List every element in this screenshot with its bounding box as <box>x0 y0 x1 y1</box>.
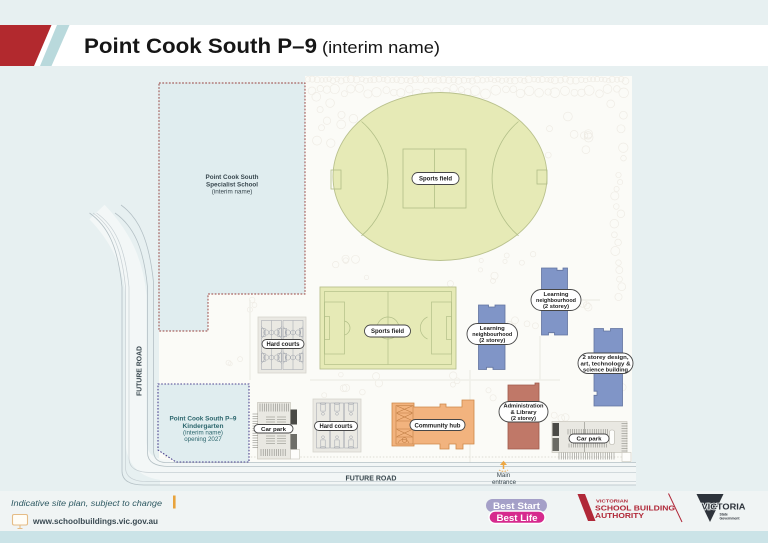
svg-text:neighbourhood: neighbourhood <box>472 332 512 338</box>
svg-text:FUTURE ROAD: FUTURE ROAD <box>346 474 398 483</box>
svg-text:Learning: Learning <box>480 326 505 332</box>
svg-text:Specialist School: Specialist School <box>206 182 258 189</box>
svg-text:AUTHORITY: AUTHORITY <box>595 511 644 520</box>
svg-text:& Library: & Library <box>511 410 538 416</box>
svg-text:Best Life: Best Life <box>497 513 538 523</box>
svg-text:Best Start: Best Start <box>493 501 540 511</box>
svg-text:(interim name): (interim name) <box>322 38 440 57</box>
svg-text:2 storey design,: 2 storey design, <box>583 355 629 361</box>
svg-text:Point Cook South P–9: Point Cook South P–9 <box>170 416 237 423</box>
svg-text:opening 2027: opening 2027 <box>184 436 222 443</box>
svg-text:VICTORIA: VICTORIA <box>702 503 746 512</box>
svg-text:(2 storey): (2 storey) <box>543 304 569 310</box>
svg-text:Hard courts: Hard courts <box>320 423 354 430</box>
svg-text:Community hub: Community hub <box>415 422 461 429</box>
svg-text:art, technology &: art, technology & <box>581 361 631 367</box>
svg-text:www.schoolbuildings.vic.gov.au: www.schoolbuildings.vic.gov.au <box>32 517 158 526</box>
svg-text:(2 storey): (2 storey) <box>511 416 536 422</box>
svg-text:Hard courts: Hard courts <box>267 341 301 348</box>
svg-text:Indicative site plan, subject: Indicative site plan, subject to change <box>11 498 162 508</box>
svg-text:Point Cook South P–9: Point Cook South P–9 <box>84 34 317 58</box>
svg-text:(2 storey): (2 storey) <box>479 338 505 344</box>
svg-text:Car park: Car park <box>261 427 287 433</box>
svg-text:neighbourhood: neighbourhood <box>536 298 576 304</box>
svg-text:Administration: Administration <box>504 404 544 410</box>
svg-text:FUTURE ROAD: FUTURE ROAD <box>137 346 144 396</box>
svg-text:science building: science building <box>583 367 628 373</box>
svg-text:Point Cook South: Point Cook South <box>206 174 259 181</box>
svg-text:Government: Government <box>720 517 741 521</box>
svg-text:Main: Main <box>497 472 511 479</box>
svg-text:entrance: entrance <box>492 479 517 486</box>
svg-text:Sports field: Sports field <box>371 328 404 335</box>
svg-text:Learning: Learning <box>544 292 569 298</box>
svg-text:Car park: Car park <box>577 437 603 443</box>
svg-text:(interim name): (interim name) <box>212 189 253 196</box>
svg-text:Sports field: Sports field <box>419 176 452 183</box>
